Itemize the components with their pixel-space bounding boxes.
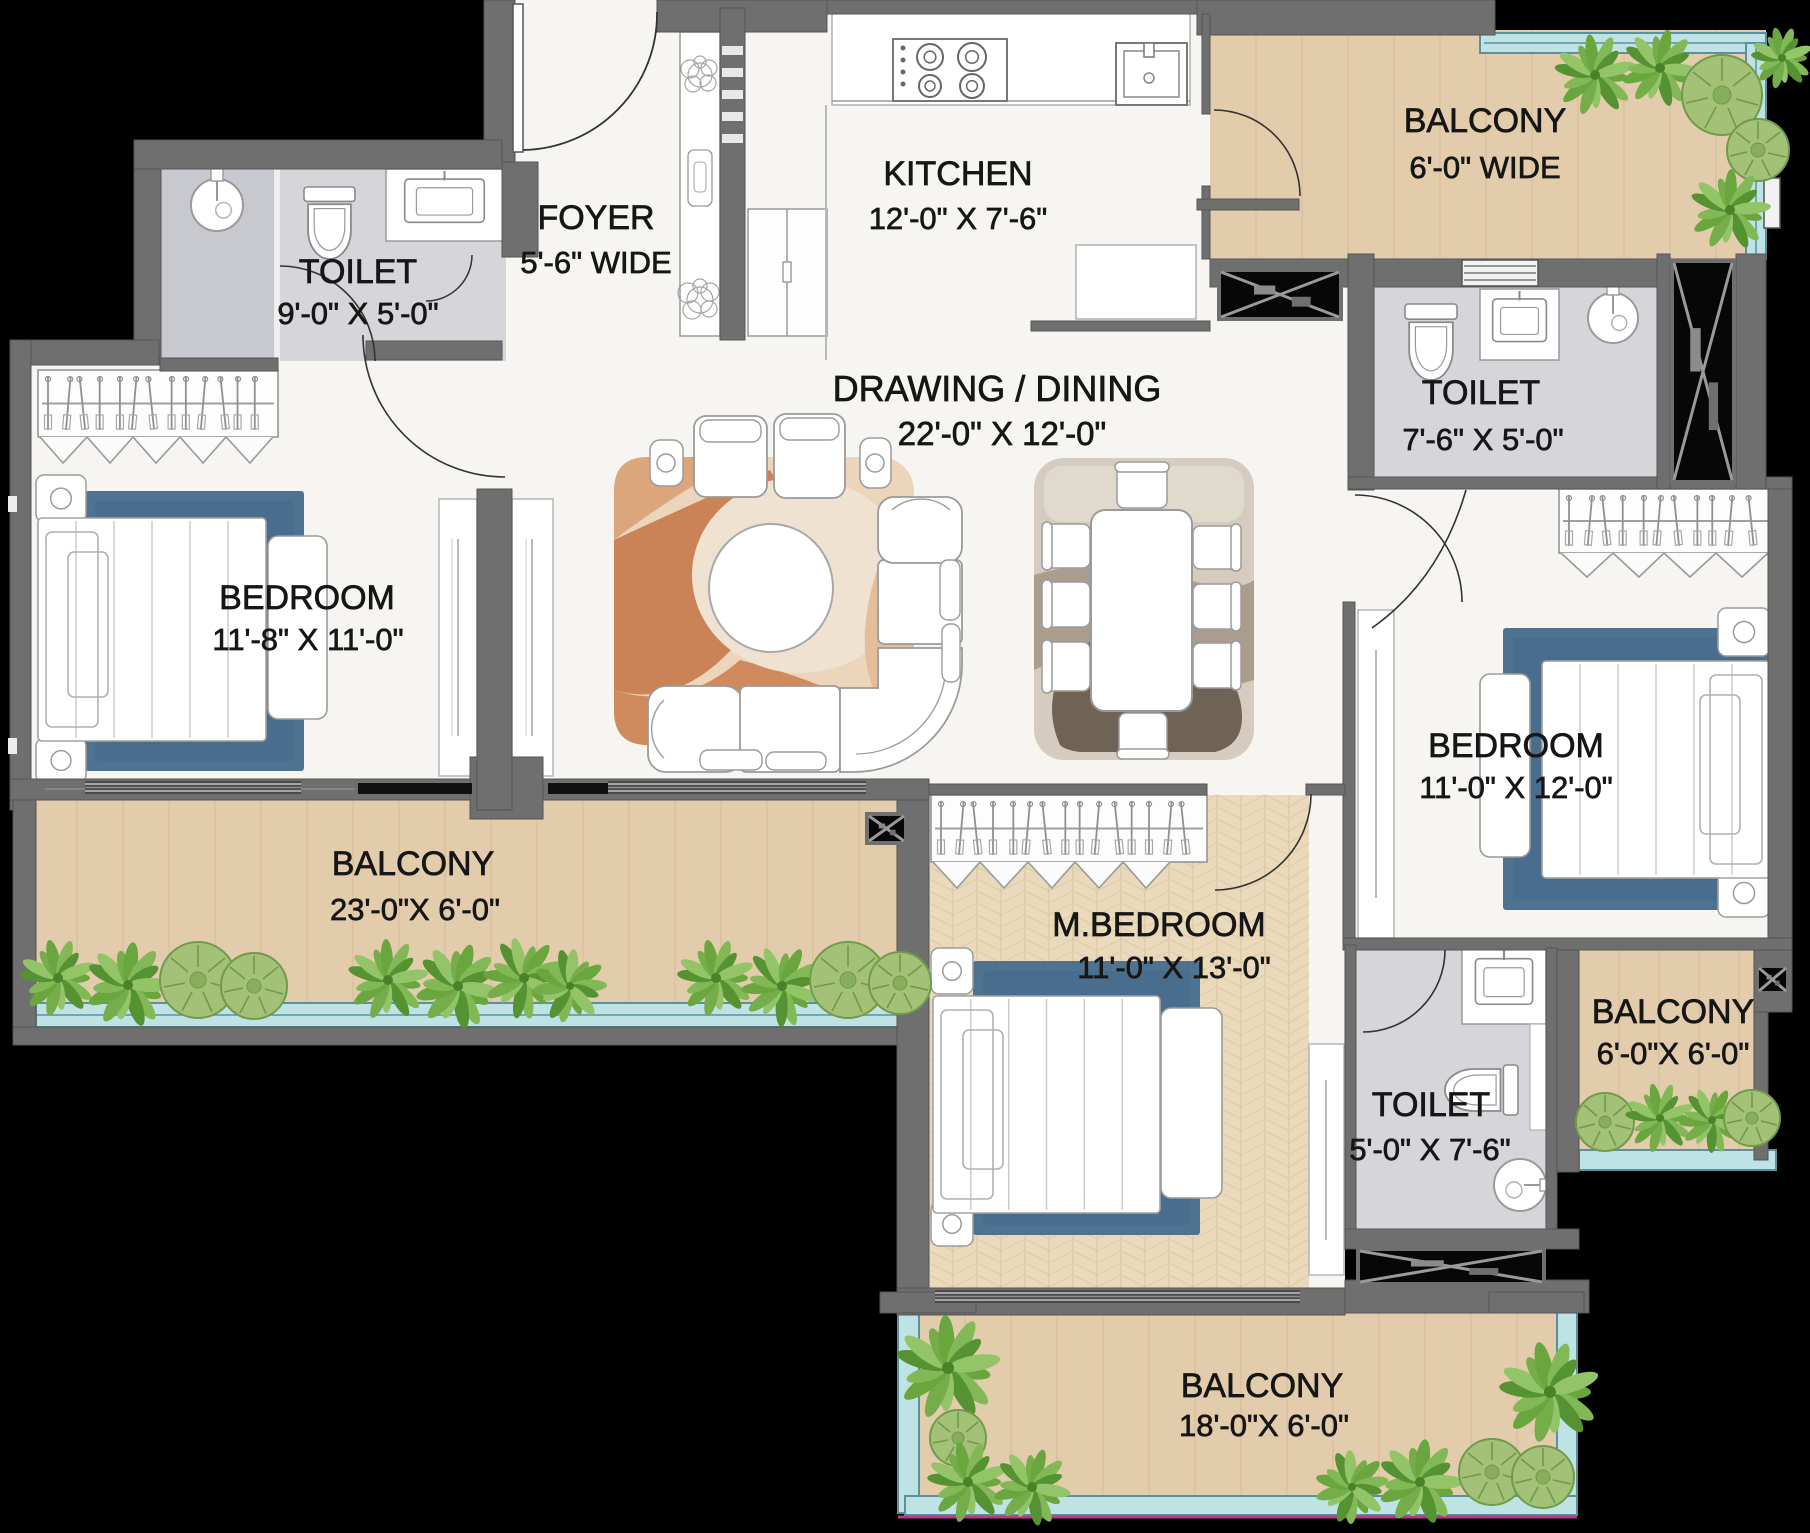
svg-text:5'-0" X 7'-6": 5'-0" X 7'-6" — [1349, 1132, 1510, 1167]
svg-text:18'-0"X 6'-0": 18'-0"X 6'-0" — [1179, 1408, 1349, 1443]
svg-text:M.BEDROOM: M.BEDROOM — [1052, 906, 1265, 944]
svg-text:11'-0" X 13'-0": 11'-0" X 13'-0" — [1077, 950, 1271, 985]
svg-text:TOILET: TOILET — [1372, 1086, 1490, 1124]
svg-text:KITCHEN: KITCHEN — [883, 155, 1032, 193]
svg-text:9'-0" X 5'-0": 9'-0" X 5'-0" — [277, 296, 438, 331]
svg-text:23'-0"X 6'-0": 23'-0"X 6'-0" — [330, 892, 500, 927]
svg-text:BEDROOM: BEDROOM — [1428, 727, 1604, 765]
svg-text:BALCONY: BALCONY — [1404, 102, 1567, 140]
svg-text:TOILET: TOILET — [299, 253, 417, 291]
svg-text:BALCONY: BALCONY — [1592, 993, 1755, 1031]
svg-text:7'-6" X 5'-0": 7'-6" X 5'-0" — [1402, 422, 1563, 457]
svg-text:BALCONY: BALCONY — [332, 845, 495, 883]
svg-text:TOILET: TOILET — [1422, 374, 1540, 412]
svg-text:22'-0" X 12'-0": 22'-0" X 12'-0" — [898, 415, 1106, 452]
svg-text:DRAWING / DINING: DRAWING / DINING — [833, 368, 1162, 409]
svg-text:12'-0" X 7'-6": 12'-0" X 7'-6" — [869, 201, 1048, 236]
svg-text:BALCONY: BALCONY — [1181, 1367, 1344, 1405]
svg-text:5'-6" WIDE: 5'-6" WIDE — [520, 245, 671, 280]
svg-text:6'-0" WIDE: 6'-0" WIDE — [1409, 150, 1560, 185]
svg-text:11'-0" X 12'-0": 11'-0" X 12'-0" — [1419, 770, 1613, 805]
svg-text:6'-0"X 6'-0": 6'-0"X 6'-0" — [1597, 1036, 1750, 1071]
svg-text:BEDROOM: BEDROOM — [219, 579, 395, 617]
svg-text:11'-8" X 11'-0": 11'-8" X 11'-0" — [212, 622, 403, 657]
svg-text:FOYER: FOYER — [537, 199, 654, 237]
